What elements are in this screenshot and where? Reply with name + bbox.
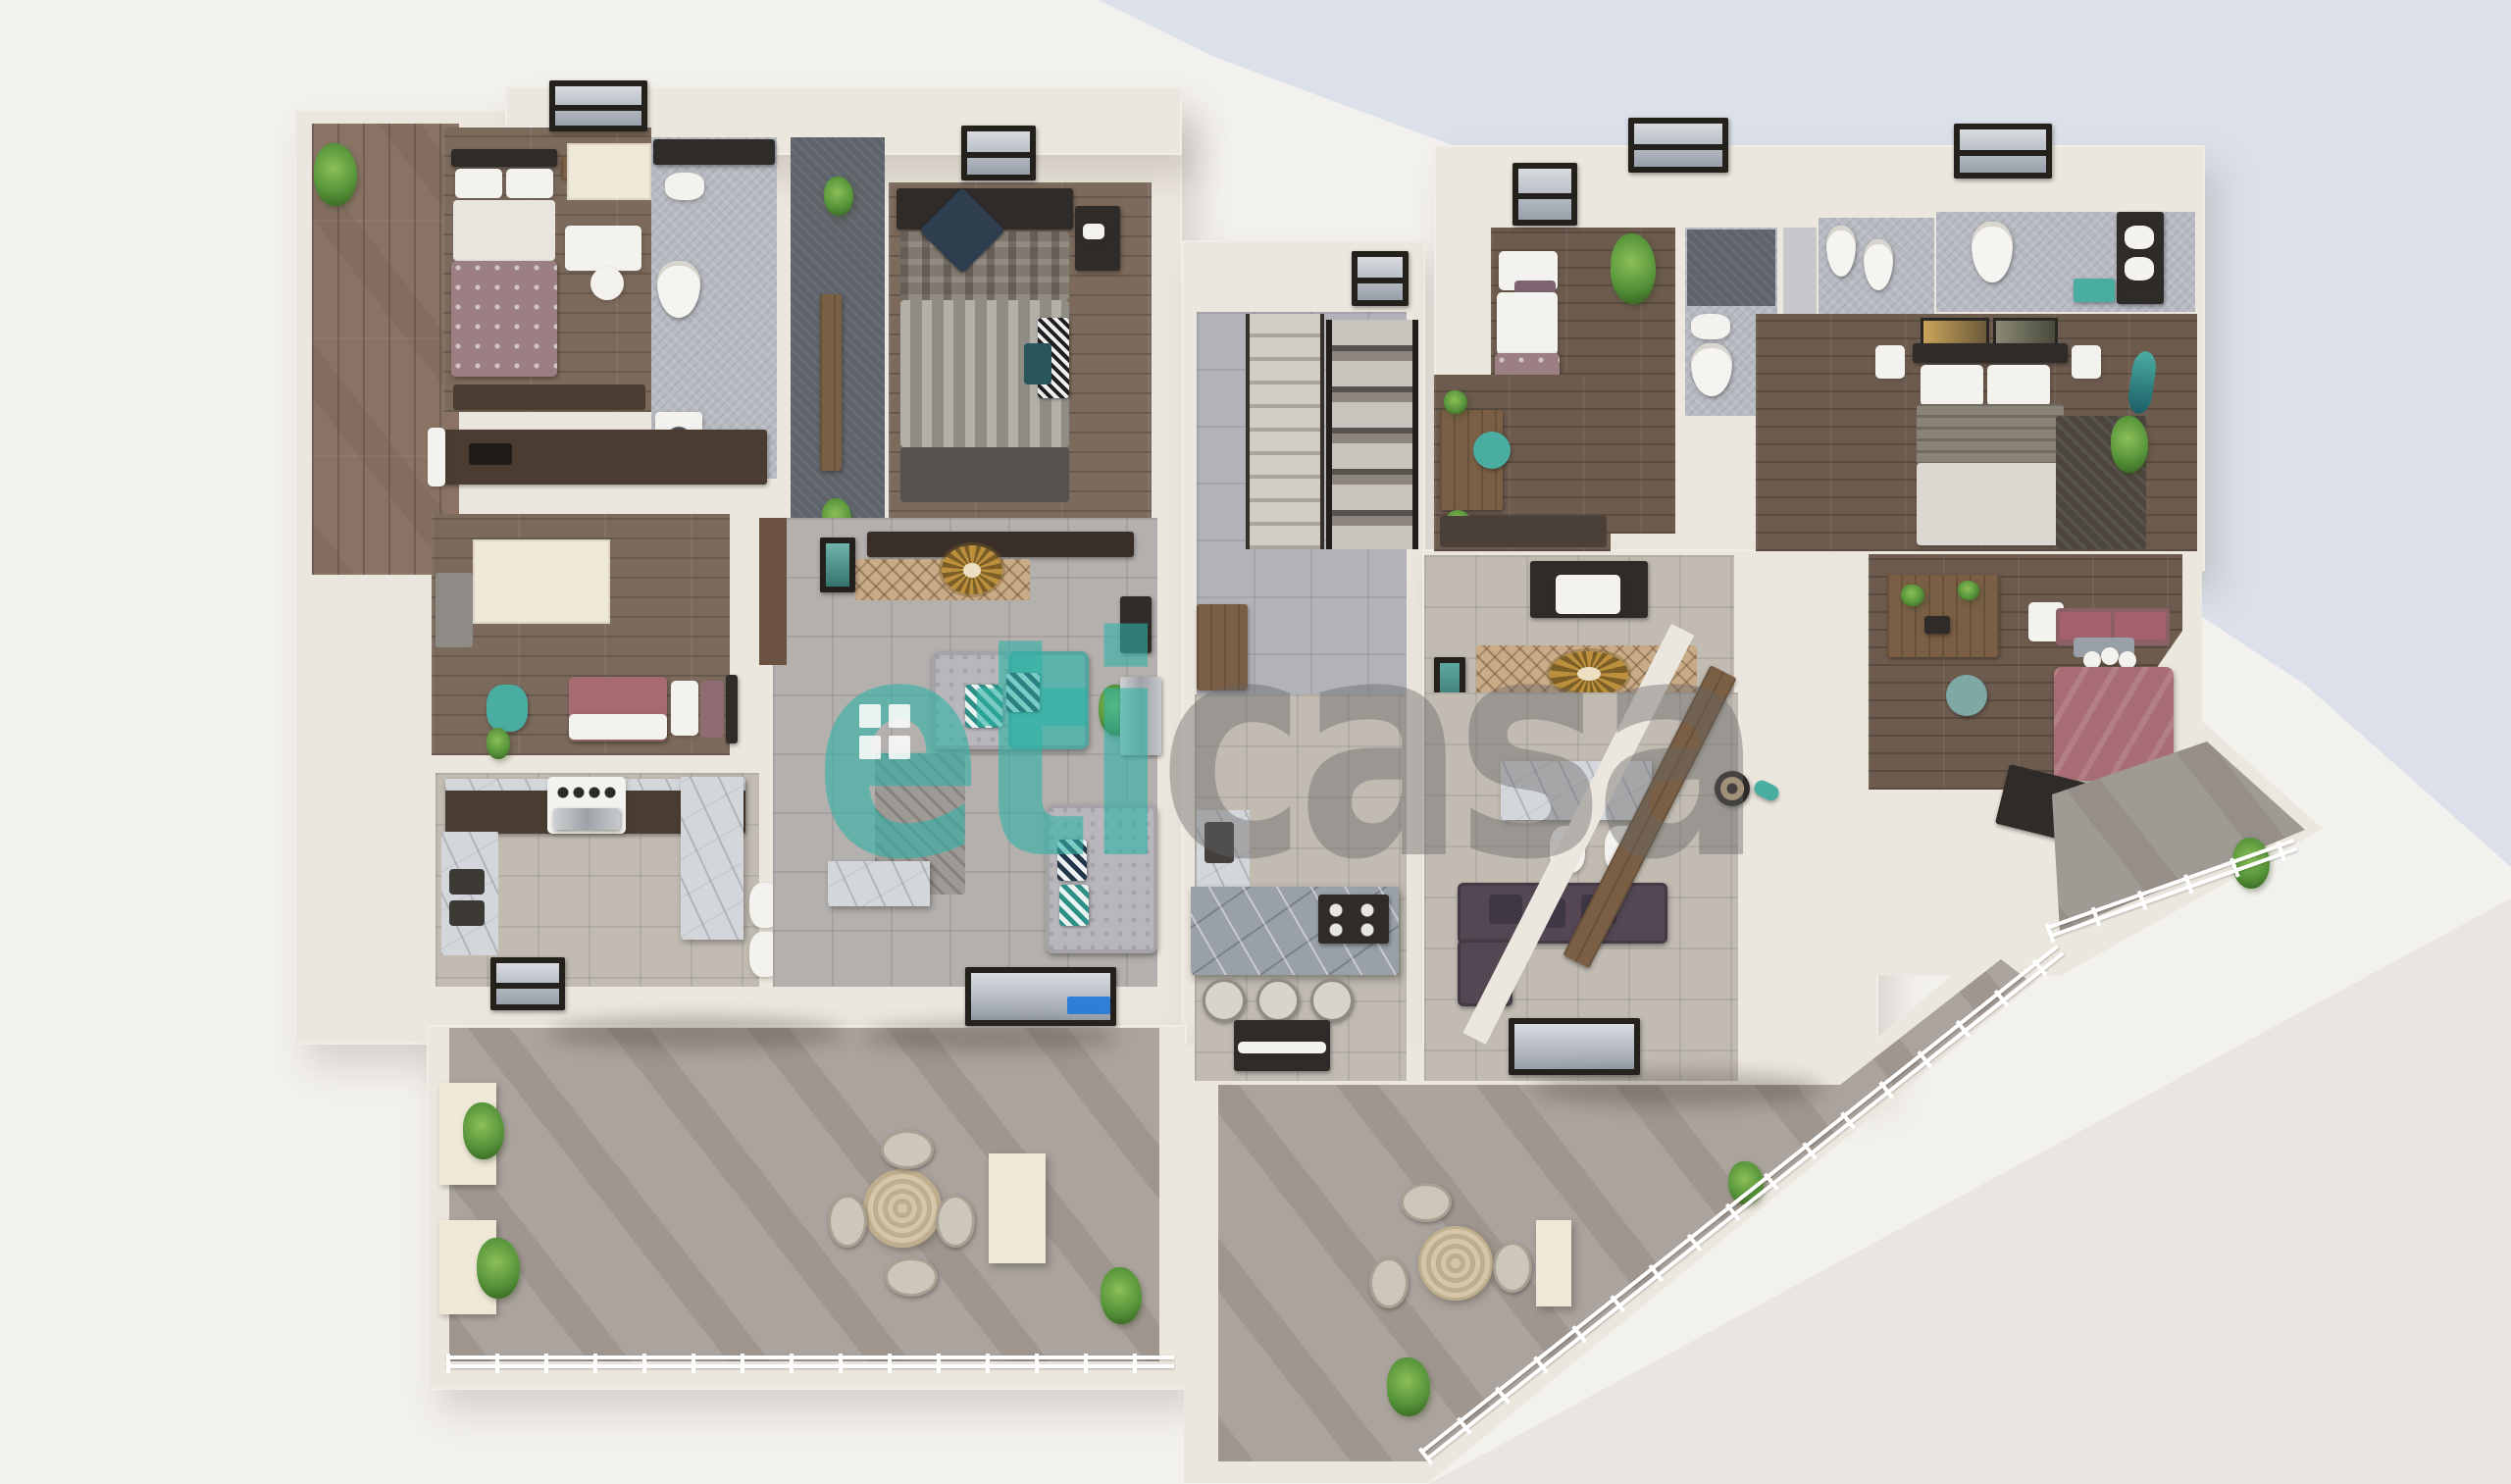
tv-bench-shelf — [1238, 1042, 1326, 1053]
shower-plant — [824, 177, 853, 216]
living2-terrace-window — [1509, 1018, 1640, 1075]
bedroom2-plant — [487, 728, 510, 759]
watermark-house-window-icon — [859, 736, 881, 759]
staircase-flight-right — [1326, 320, 1418, 549]
watermark-house-window-icon — [889, 704, 910, 728]
window-blue-glass — [1067, 997, 1110, 1014]
island-stool — [1203, 979, 1246, 1022]
bedroom3-sheet — [1497, 292, 1558, 355]
kitchen-sink-basin — [449, 869, 485, 895]
kitchenette-sink — [469, 443, 512, 465]
bathroom1-vanity — [653, 139, 775, 165]
nightstand-paper — [1083, 224, 1104, 239]
outdoor-chair — [1369, 1257, 1409, 1308]
hallway-window — [1352, 251, 1409, 306]
kids-desk-plant — [1958, 581, 1979, 600]
bedroom2-pillow — [700, 681, 724, 738]
right-top-window — [1628, 118, 1728, 173]
terrace-plant — [477, 1238, 520, 1299]
foyer-sunburst — [1550, 651, 1628, 696]
sofa-zigzag-pillow — [965, 685, 1002, 728]
master2-headboard — [1913, 343, 2068, 363]
hat — [1720, 777, 1744, 800]
bedroom1-floral-duvet — [451, 261, 557, 377]
ensuite-sink — [2125, 226, 2154, 249]
sofa-purple-pillow — [1489, 895, 1522, 924]
terrace-pillar-planter — [989, 1153, 1046, 1263]
bedroom2-sheet-fold — [569, 714, 667, 740]
hob-burners — [1324, 900, 1383, 938]
kitchen-oven — [553, 808, 620, 830]
bedroom2-cabinet — [436, 573, 473, 647]
bedroom1-desk — [565, 226, 641, 271]
balcony-plant — [314, 143, 357, 206]
fridge — [1120, 677, 1161, 755]
terrace-pillar-planter — [1536, 1220, 1571, 1306]
master1-bed-foot — [900, 447, 1069, 502]
dining-slab — [681, 777, 743, 940]
master2-nightstand — [2072, 345, 2101, 379]
bedroom2-wardrobe — [473, 539, 610, 624]
staircase-flight-left — [1246, 314, 1324, 549]
bedroom3-plant — [1611, 233, 1656, 304]
bedroom2-headboard — [726, 675, 738, 743]
foyer-closet-shelf — [1556, 575, 1620, 614]
study-chair — [1473, 432, 1511, 469]
bedroom2-armchair — [487, 685, 528, 732]
kitchen2-sink — [1204, 822, 1234, 863]
terrace-plant — [1101, 1267, 1142, 1324]
ensuite-bath-mat — [2074, 279, 2115, 302]
terrace-plant — [1387, 1357, 1430, 1416]
master2-duvet-white — [1917, 463, 2064, 545]
master2-nightstand — [1875, 345, 1905, 379]
bedroom1-pillow — [455, 169, 502, 198]
master2-pillow — [1987, 365, 2050, 406]
watermark-house-window-icon — [859, 704, 881, 728]
living-sunburst-rug — [942, 545, 1002, 594]
master1-window — [961, 126, 1036, 180]
bedroom2-pillow — [671, 681, 698, 736]
shower-bench — [820, 294, 842, 471]
watermark-house-window-icon — [889, 736, 910, 759]
living-entry-door — [820, 537, 855, 592]
outdoor-chair — [1401, 1183, 1452, 1222]
kids-pillow — [2115, 612, 2166, 640]
range-burners — [555, 783, 618, 802]
right-top-window — [1954, 124, 2052, 179]
kitchenette-cabinet — [428, 428, 445, 486]
kids-desk-plant — [1901, 585, 1924, 606]
living-door-column — [759, 518, 787, 665]
tv-panel — [1120, 596, 1152, 653]
terrace-left-paving — [449, 1028, 1159, 1361]
bedroom1-headboard — [451, 149, 557, 167]
kids-laptop — [1924, 616, 1950, 634]
outdoor-chair — [881, 1130, 934, 1169]
bedroom1-window — [549, 80, 647, 131]
kitchen-window — [490, 957, 565, 1010]
master2-duvet-gray — [1917, 404, 2064, 465]
bathroom2-sink — [1691, 314, 1730, 339]
sofa-zigzag-pillow — [1057, 840, 1087, 881]
ensuite-sink — [2125, 257, 2154, 281]
floorplan-render: eticasa — [0, 0, 2511, 1484]
master1-teal-pillow — [1024, 343, 1051, 384]
plush-toy — [2101, 647, 2119, 665]
island-stool — [1310, 979, 1354, 1022]
outdoor-table — [1418, 1226, 1493, 1301]
outdoor-chair — [885, 1257, 938, 1297]
kitchen-sink-basin — [449, 900, 485, 926]
sofa-zigzag-pillow — [1006, 673, 1040, 712]
bedroom1-sheet — [453, 200, 555, 261]
island-stool — [1256, 979, 1300, 1022]
kids-chair — [1946, 675, 1987, 716]
terrace-railing — [446, 1354, 1174, 1373]
terrace-plant — [463, 1102, 504, 1159]
bathroom1-sink — [665, 173, 704, 200]
bedroom1-chair — [590, 267, 624, 300]
bedroom1-pillow — [506, 169, 553, 198]
living-sideboard — [867, 532, 1134, 557]
kids-pillow — [2060, 612, 2111, 640]
outdoor-chair — [936, 1195, 975, 1248]
study-rug — [1440, 516, 1607, 547]
study-plant — [1444, 390, 1467, 414]
bedroom1-rug — [453, 384, 645, 410]
outdoor-chair — [828, 1195, 867, 1248]
coffee-table — [828, 861, 930, 906]
bedroom3-window — [1512, 163, 1577, 226]
sofa-zigzag-pillow — [1059, 885, 1089, 926]
bedroom1-wardrobe — [567, 143, 651, 200]
master2-pillow — [1921, 365, 1983, 406]
pantry-cabinet — [1197, 604, 1248, 691]
master2-plant — [2111, 416, 2148, 473]
outdoor-table — [863, 1169, 942, 1248]
outdoor-chair — [1493, 1242, 1532, 1293]
bathroom2-shower — [1687, 230, 1775, 306]
